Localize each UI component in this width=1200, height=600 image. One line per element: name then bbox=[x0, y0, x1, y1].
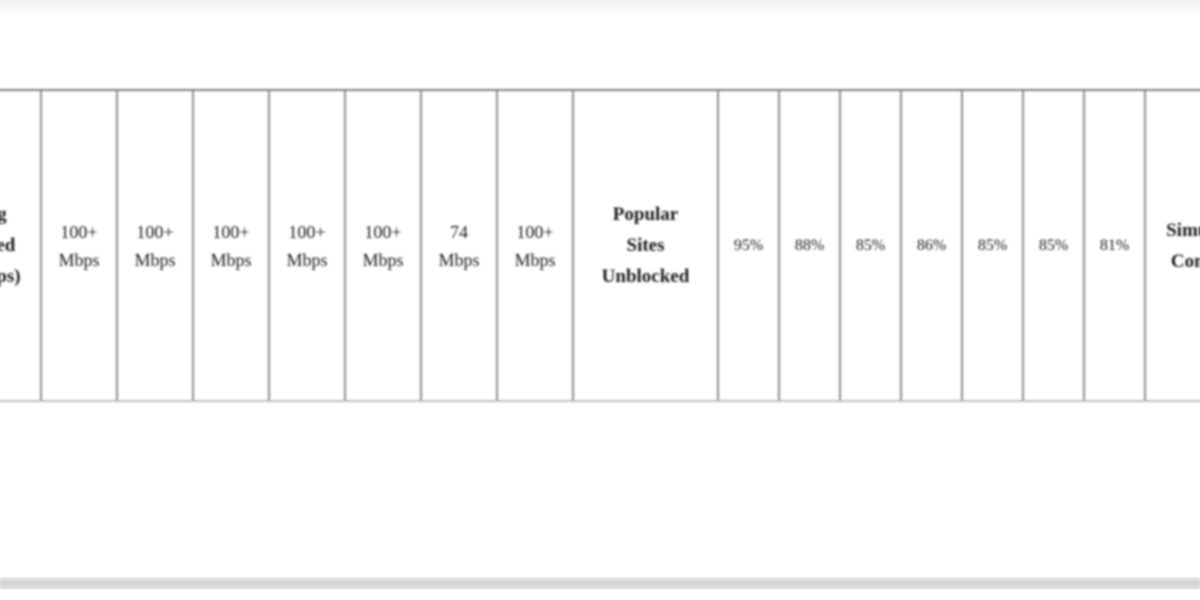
value-line: 88% bbox=[795, 236, 824, 256]
value-line: 74 bbox=[450, 218, 468, 246]
header-line: (Mbps) bbox=[0, 261, 21, 292]
value-cell-sites_unblocked: 86% bbox=[902, 91, 963, 400]
row-header-cell-connections: SimultaneousConnections bbox=[1146, 91, 1200, 400]
value-cell-avg_speed: 100+Mbps bbox=[42, 91, 118, 400]
value-line: Mbps bbox=[134, 246, 175, 274]
row-header-cell-sites_unblocked: PopularSitesUnblocked bbox=[574, 91, 719, 400]
value-line: Mbps bbox=[514, 246, 555, 274]
value-line: 86% bbox=[917, 236, 946, 256]
value-cell-avg_speed: 100+Mbps bbox=[270, 91, 346, 400]
value-line: 100+ bbox=[364, 218, 401, 246]
bottom-divider bbox=[0, 577, 1200, 589]
header-line: Unblocked bbox=[602, 261, 690, 292]
header-line: Avg bbox=[0, 199, 7, 230]
value-line: 100+ bbox=[60, 218, 97, 246]
value-line: Mbps bbox=[362, 246, 403, 274]
value-line: Mbps bbox=[210, 246, 251, 274]
value-line: 85% bbox=[856, 236, 885, 256]
value-cell-avg_speed: 100+Mbps bbox=[194, 91, 270, 400]
comparison-table: AvgSpeed(Mbps)100+Mbps100+Mbps100+Mbps10… bbox=[0, 89, 1200, 402]
header-line: Simultaneous bbox=[1166, 215, 1200, 246]
header-line: Speed bbox=[0, 230, 15, 261]
value-line: 100+ bbox=[136, 218, 173, 246]
value-cell-avg_speed: 74Mbps bbox=[422, 91, 498, 400]
value-line: 85% bbox=[978, 236, 1007, 256]
value-cell-sites_unblocked: 85% bbox=[1024, 91, 1085, 400]
value-line: 95% bbox=[734, 236, 763, 256]
header-line: Connections bbox=[1171, 246, 1200, 277]
value-cell-sites_unblocked: 88% bbox=[780, 91, 841, 400]
value-cell-avg_speed: 100+Mbps bbox=[346, 91, 422, 400]
value-line: Mbps bbox=[58, 246, 99, 274]
header-line: Popular bbox=[613, 199, 678, 230]
value-cell-sites_unblocked: 95% bbox=[719, 91, 780, 400]
value-cell-sites_unblocked: 81% bbox=[1085, 91, 1146, 400]
value-cell-avg_speed: 100+Mbps bbox=[118, 91, 194, 400]
value-line: 100+ bbox=[288, 218, 325, 246]
value-line: 81% bbox=[1100, 236, 1129, 256]
top-divider bbox=[0, 0, 1200, 16]
value-cell-avg_speed: 100+Mbps bbox=[498, 91, 574, 400]
row-header-cell-avg_speed: AvgSpeed(Mbps) bbox=[0, 91, 42, 400]
value-line: Mbps bbox=[286, 246, 327, 274]
value-cell-sites_unblocked: 85% bbox=[963, 91, 1024, 400]
value-line: Mbps bbox=[438, 246, 479, 274]
value-line: 85% bbox=[1039, 236, 1068, 256]
value-line: 100+ bbox=[516, 218, 553, 246]
header-line: Sites bbox=[627, 230, 665, 261]
value-cell-sites_unblocked: 85% bbox=[841, 91, 902, 400]
value-line: 100+ bbox=[212, 218, 249, 246]
